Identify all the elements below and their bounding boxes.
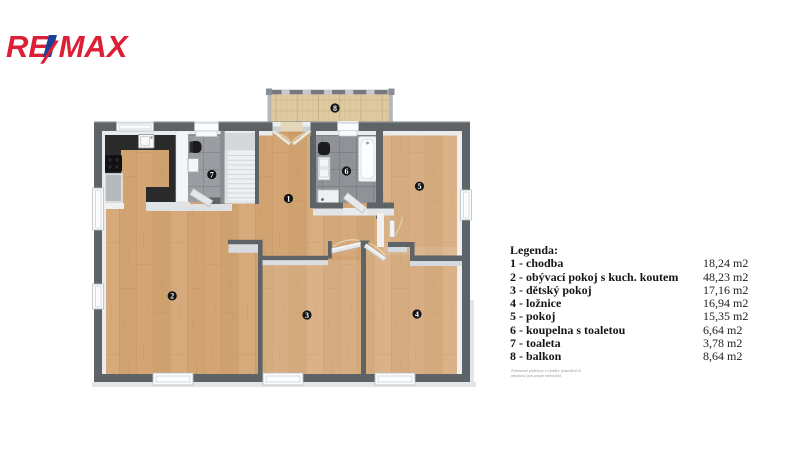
svg-text:2: 2 [170, 292, 174, 301]
svg-text:7: 7 [210, 170, 214, 179]
svg-text:6: 6 [345, 167, 349, 176]
svg-text:8: 8 [333, 104, 337, 113]
svg-text:1: 1 [287, 194, 291, 203]
svg-text:5: 5 [418, 182, 422, 191]
svg-text:4: 4 [415, 310, 419, 319]
svg-text:3: 3 [305, 311, 309, 320]
